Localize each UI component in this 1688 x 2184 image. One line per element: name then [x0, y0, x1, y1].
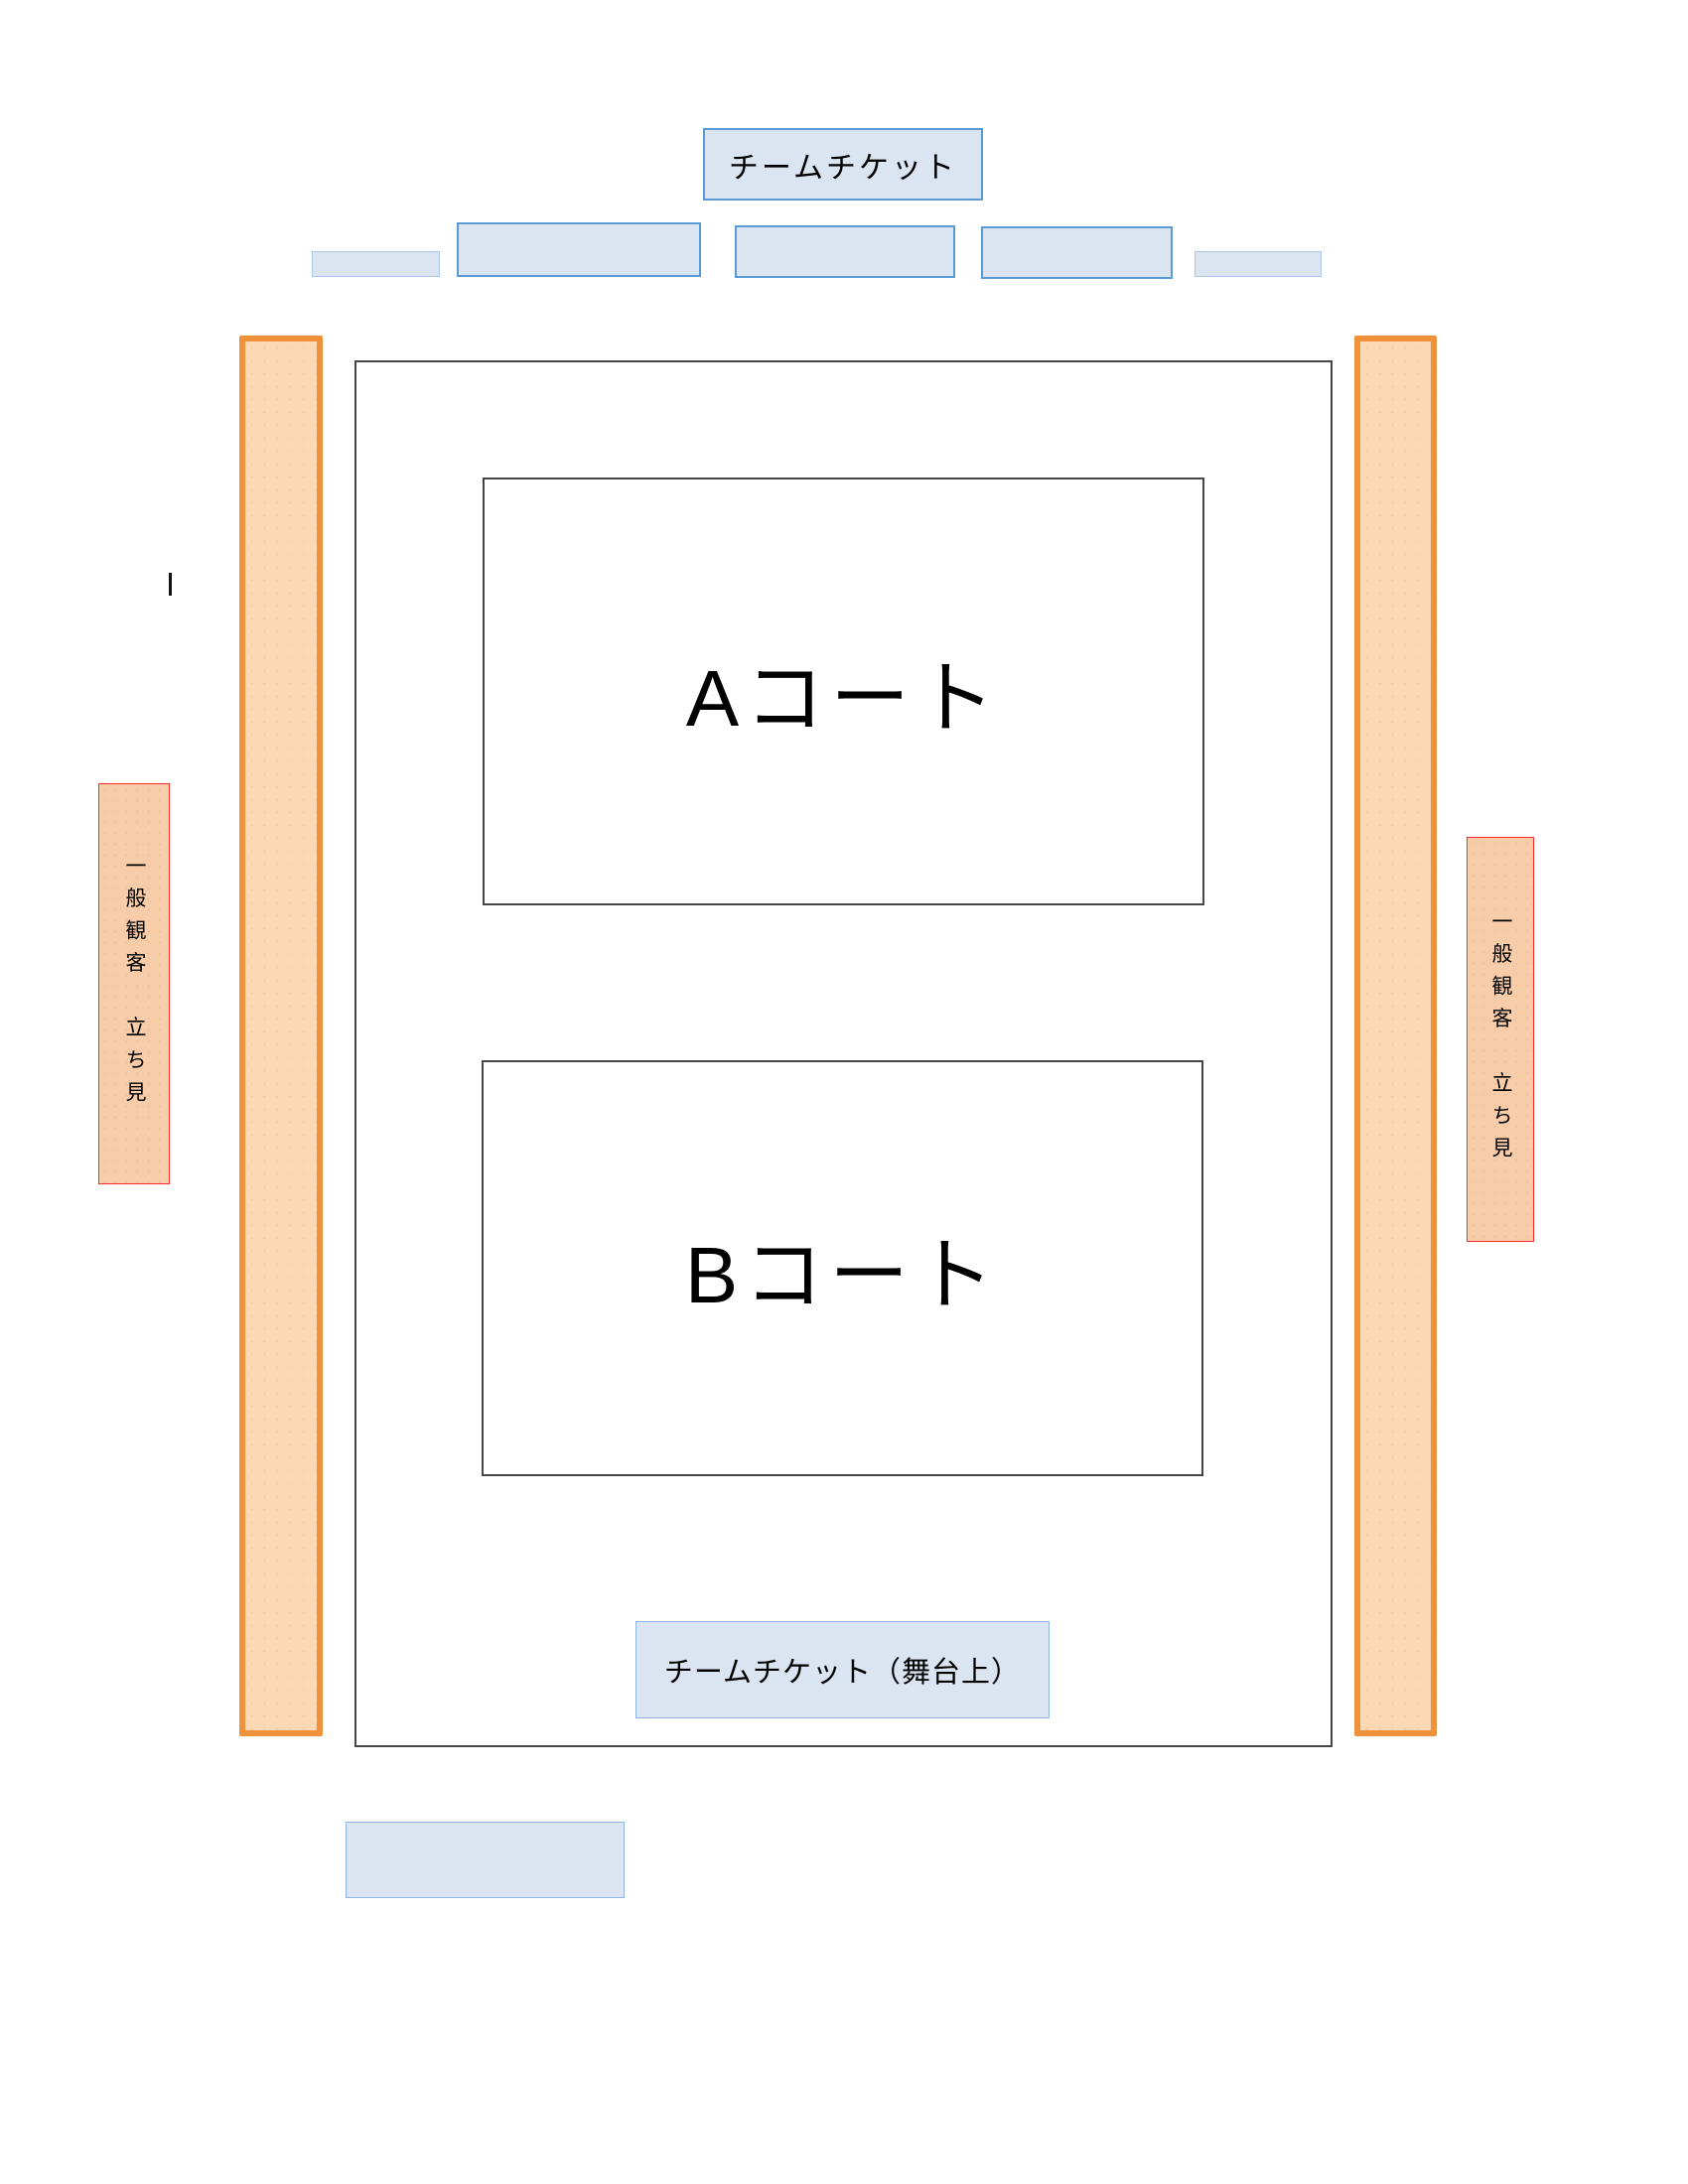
ticket-row-box-5 [1195, 251, 1322, 277]
ticket-row-box-4 [981, 226, 1173, 279]
top-team-ticket-box: チームチケット [703, 128, 983, 201]
standing-strip-right [1354, 336, 1437, 1736]
stage-team-ticket-box: チームチケット（舞台上） [635, 1621, 1050, 1718]
standing-label-left-box: 一般観客 立ち見 [98, 783, 170, 1184]
court-a-box: Aコート [483, 478, 1204, 905]
standing-label-right-box: 一般観客 立ち見 [1467, 837, 1534, 1242]
ticket-row-box-3 [735, 225, 955, 278]
venue-layout-diagram: チームチケット 一般観客 立ち見 一般観客 立ち見 Aコート Bコート チームチ… [0, 0, 1688, 2184]
standing-label-left-text: 一般観客 立ち見 [119, 855, 149, 1113]
court-b-box: Bコート [482, 1060, 1203, 1476]
court-a-label: Aコート [686, 634, 1001, 750]
top-team-ticket-label: チームチケット [729, 143, 957, 187]
ticket-row-box-2 [457, 222, 701, 277]
standing-strip-left [239, 336, 323, 1736]
court-b-label: Bコート [685, 1211, 1000, 1326]
stage-team-ticket-label: チームチケット（舞台上） [664, 1649, 1021, 1691]
bottom-left-box [346, 1822, 625, 1898]
stray-tick-mark [169, 573, 172, 596]
standing-label-right-text: 一般観客 立ち見 [1485, 910, 1515, 1168]
ticket-row-box-1 [312, 251, 440, 277]
